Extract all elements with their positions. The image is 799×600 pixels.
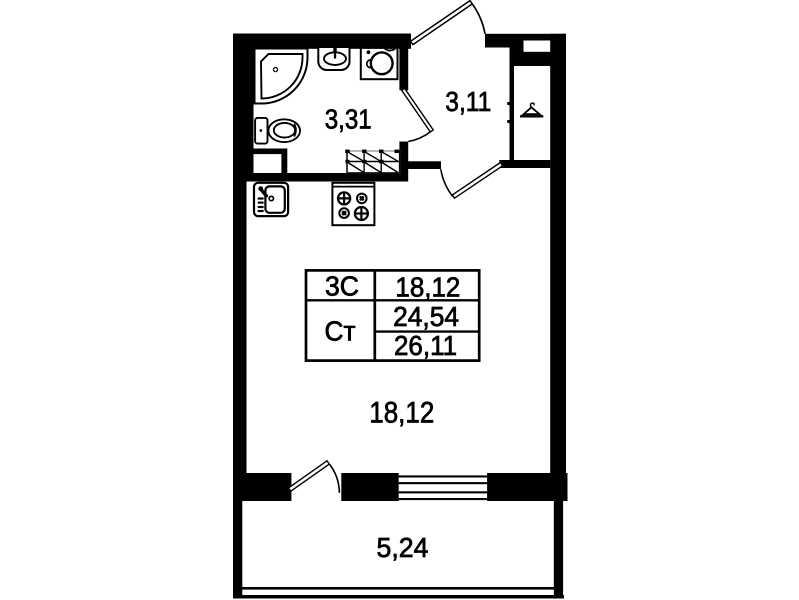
svg-text:24,54: 24,54 [393, 301, 459, 332]
svg-text:18,12: 18,12 [369, 396, 434, 429]
svg-text:18,12: 18,12 [395, 272, 460, 303]
svg-text:3С: 3С [325, 271, 359, 302]
svg-text:Ст: Ст [325, 316, 356, 347]
svg-text:3,11: 3,11 [445, 86, 491, 117]
svg-text:3,31: 3,31 [325, 104, 372, 135]
svg-text:26,11: 26,11 [394, 330, 457, 361]
svg-text:5,24: 5,24 [377, 532, 429, 563]
